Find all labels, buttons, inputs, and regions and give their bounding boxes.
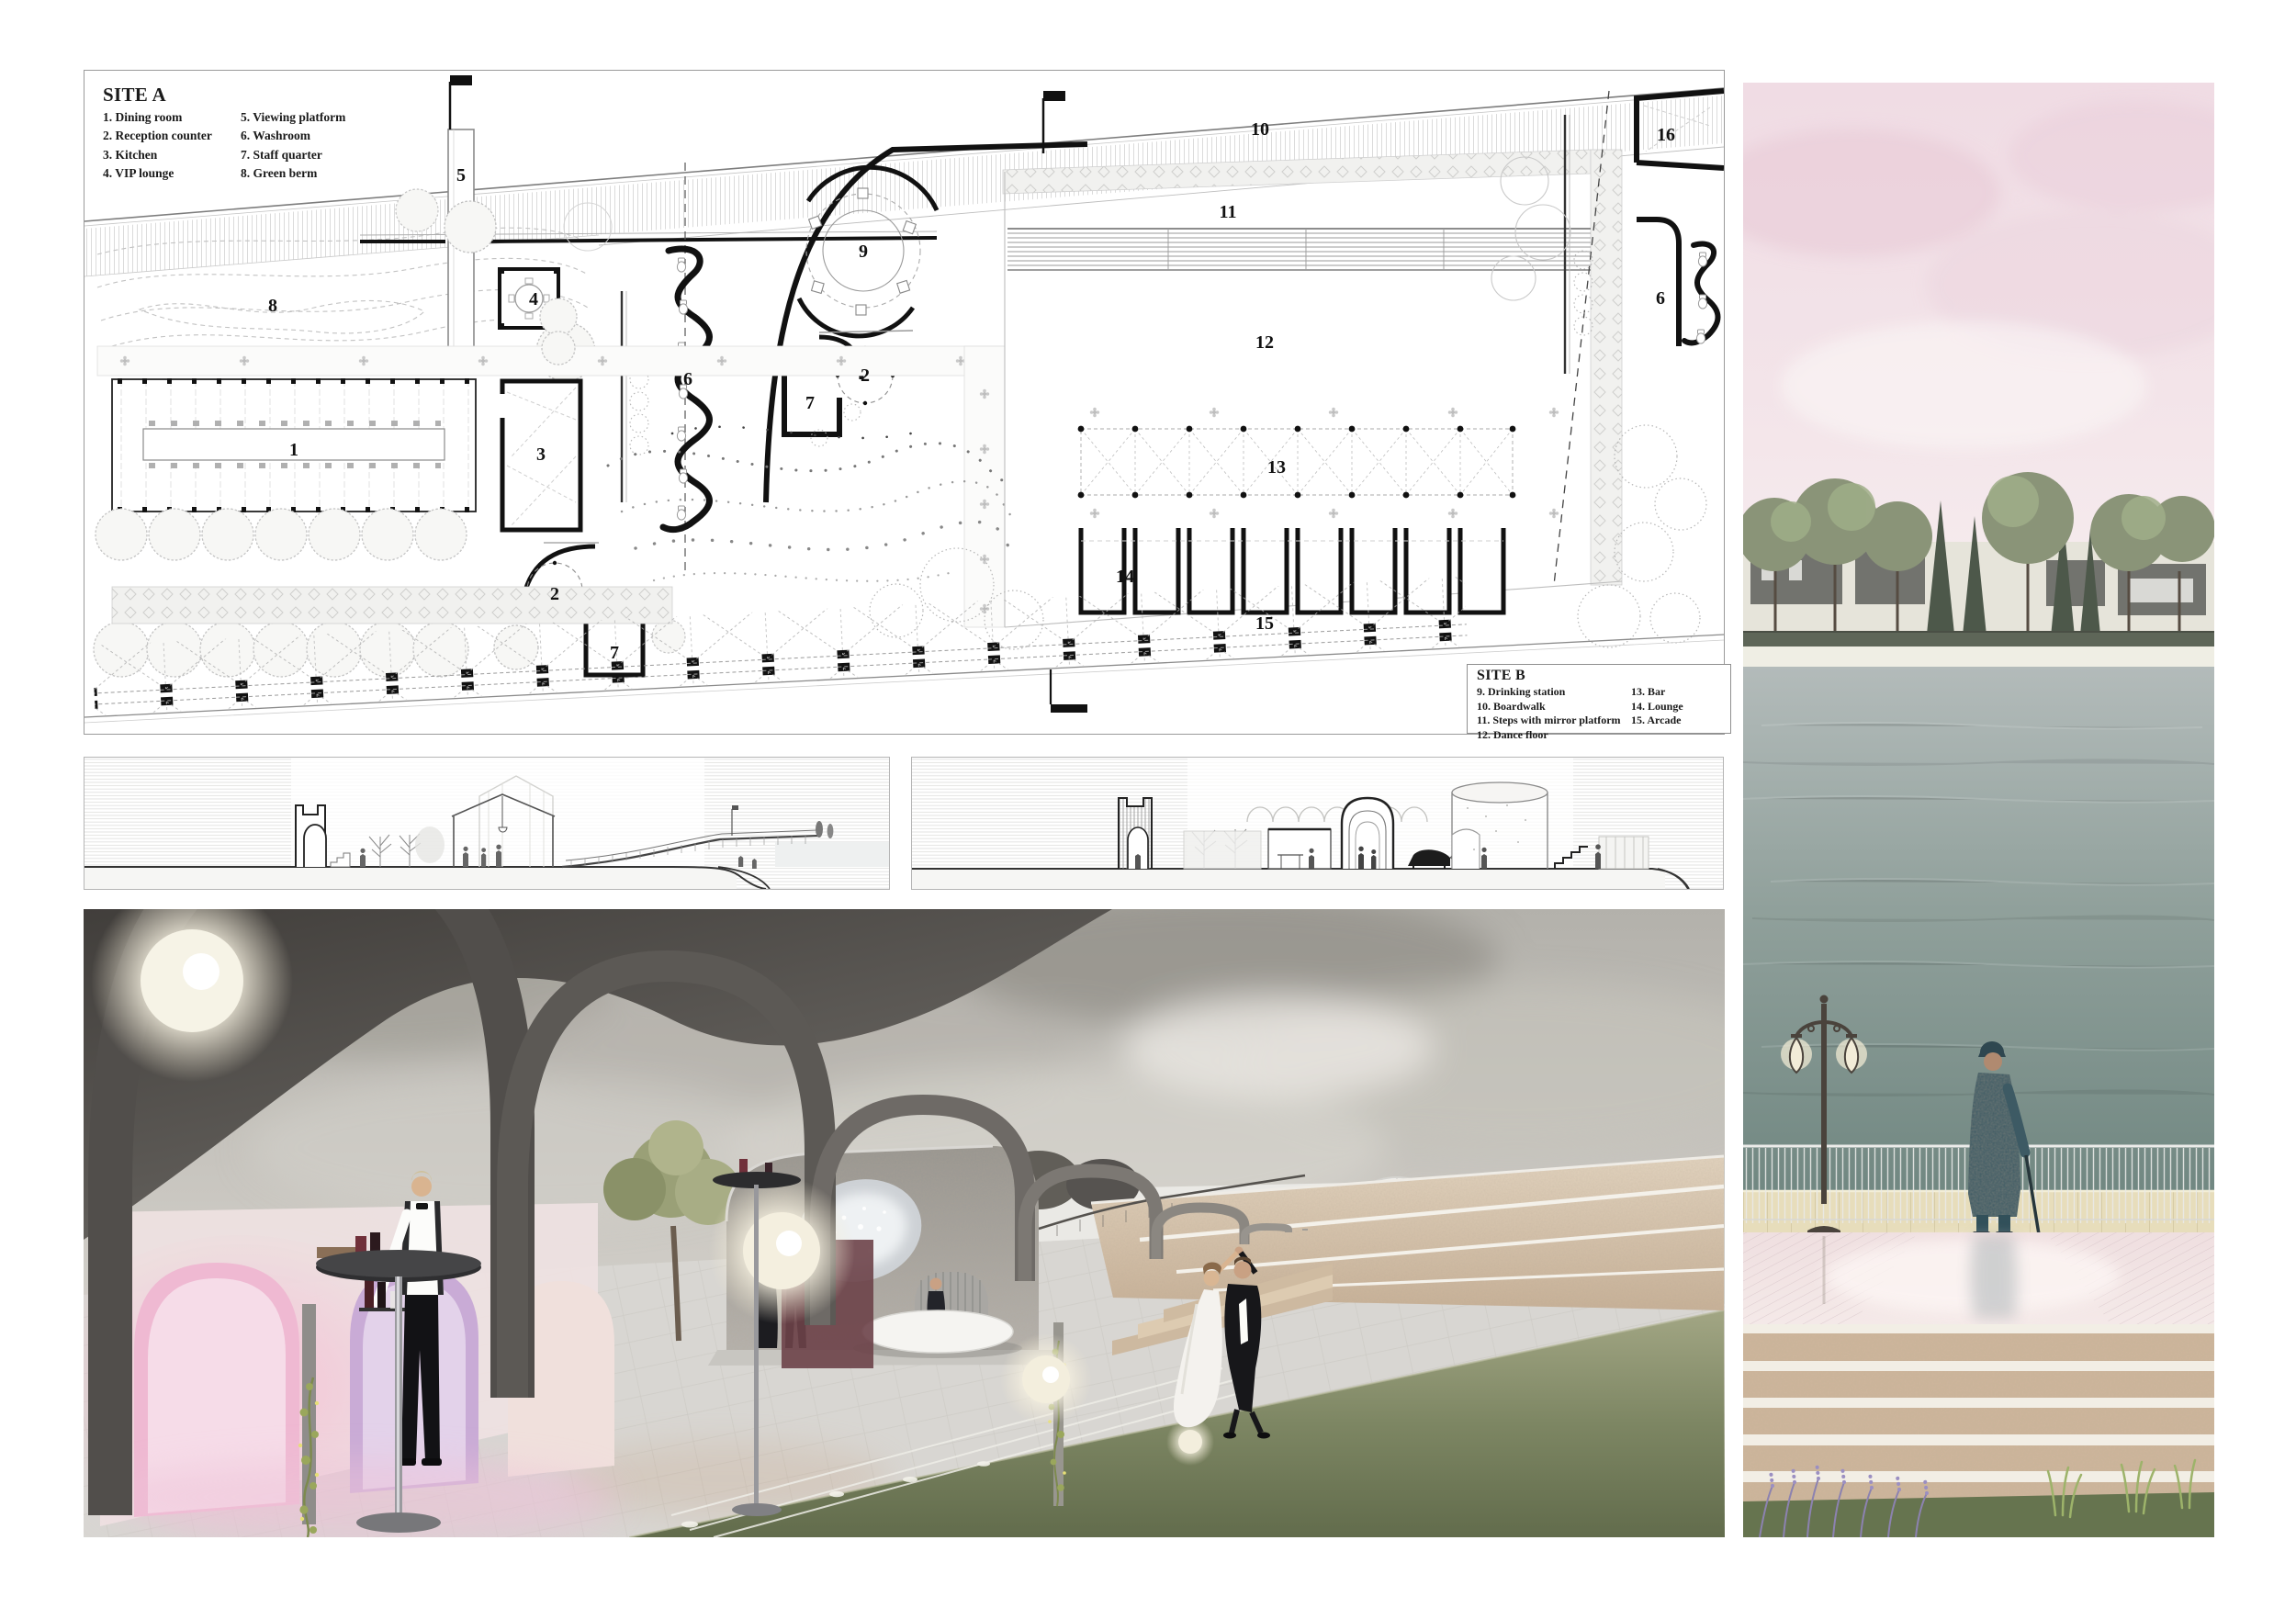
- plan-label-3: 3: [536, 444, 546, 465]
- plan-label-7: 7: [805, 393, 815, 413]
- legend-item: 7. Staff quarter: [241, 146, 345, 164]
- plan-label-2b: 2: [550, 584, 559, 604]
- plan-label-15: 15: [1255, 613, 1274, 634]
- plan-label-16: 16: [1657, 125, 1675, 145]
- legend-item: 15. Arcade: [1631, 714, 1683, 728]
- arch-pavilion: [1342, 798, 1393, 869]
- render-colonnade-lawn: [84, 909, 1725, 1537]
- plan-label-12: 12: [1255, 332, 1274, 353]
- diamond-paving-band: [112, 587, 672, 624]
- plan-label-6: 6: [683, 369, 692, 389]
- section-drawing-right: [911, 757, 1724, 890]
- section-drawing-left: [84, 757, 890, 890]
- render-waterfront: [1743, 83, 2214, 1537]
- plan-label-13: 13: [1267, 457, 1286, 478]
- arch-tower-hatched: [1119, 798, 1152, 869]
- plan-label-10: 10: [1251, 119, 1269, 140]
- legend-item: 5. Viewing platform: [241, 108, 345, 127]
- plan-label-6b: 6: [1656, 288, 1665, 309]
- legend-item: 2. Reception counter: [103, 127, 241, 145]
- plan-label-11: 11: [1220, 202, 1237, 222]
- legend-item: 9. Drinking station: [1477, 685, 1631, 700]
- legend-item: 12. Dance floor: [1477, 728, 1631, 743]
- trellis-fence: [1599, 837, 1649, 869]
- pink-promenade: [1743, 1232, 2214, 1324]
- plan-label-14: 14: [1116, 567, 1134, 587]
- presentation-board: 1 2 3 4 5 6 7 8 9 2 7 6 10 11 12 13 14 1…: [0, 0, 2296, 1619]
- legend-item: 4. VIP lounge: [103, 164, 241, 183]
- table-room: [1268, 829, 1331, 869]
- legend-site-b: SITE B 9. Drinking station 10. Boardwalk…: [1467, 664, 1731, 734]
- legend-item: 6. Washroom: [241, 127, 345, 145]
- legend-item: 1. Dining room: [103, 108, 241, 127]
- legend-item: 10. Boardwalk: [1477, 700, 1631, 714]
- plan-label-7b: 7: [610, 643, 619, 663]
- site-plan-panel: 1 2 3 4 5 6 7 8 9 2 7 6 10 11 12 13 14 1…: [84, 70, 1725, 735]
- oval-basin-bar: [862, 1310, 1013, 1353]
- legend-site-a: SITE A 1. Dining room 2. Reception count…: [103, 84, 489, 183]
- legend-site-b-title: SITE B: [1477, 668, 1723, 684]
- bar-trellis: [1078, 426, 1516, 499]
- trees: [1184, 829, 1261, 869]
- steps-mirror-platform: [1007, 229, 1591, 270]
- arch-tower: [296, 805, 326, 867]
- shoreline: [1743, 646, 2214, 667]
- man-reflection: [1971, 1235, 2018, 1318]
- confetti-scatter: [608, 427, 1012, 581]
- legend-item: 3. Kitchen: [103, 146, 241, 164]
- plan-label-8: 8: [268, 296, 277, 316]
- plan-label-1: 1: [289, 440, 298, 460]
- plan-label-4: 4: [529, 289, 538, 309]
- legend-item: 14. Lounge: [1631, 700, 1683, 714]
- legend-item: 11. Steps with mirror platform: [1477, 714, 1631, 728]
- plan-label-9: 9: [859, 242, 868, 262]
- legend-item: 13. Bar: [1631, 685, 1683, 700]
- legend-site-a-title: SITE A: [103, 84, 489, 107]
- site-b-area: [1003, 91, 1622, 627]
- plan-label-2: 2: [861, 365, 870, 386]
- legend-item: 8. Green berm: [241, 164, 345, 183]
